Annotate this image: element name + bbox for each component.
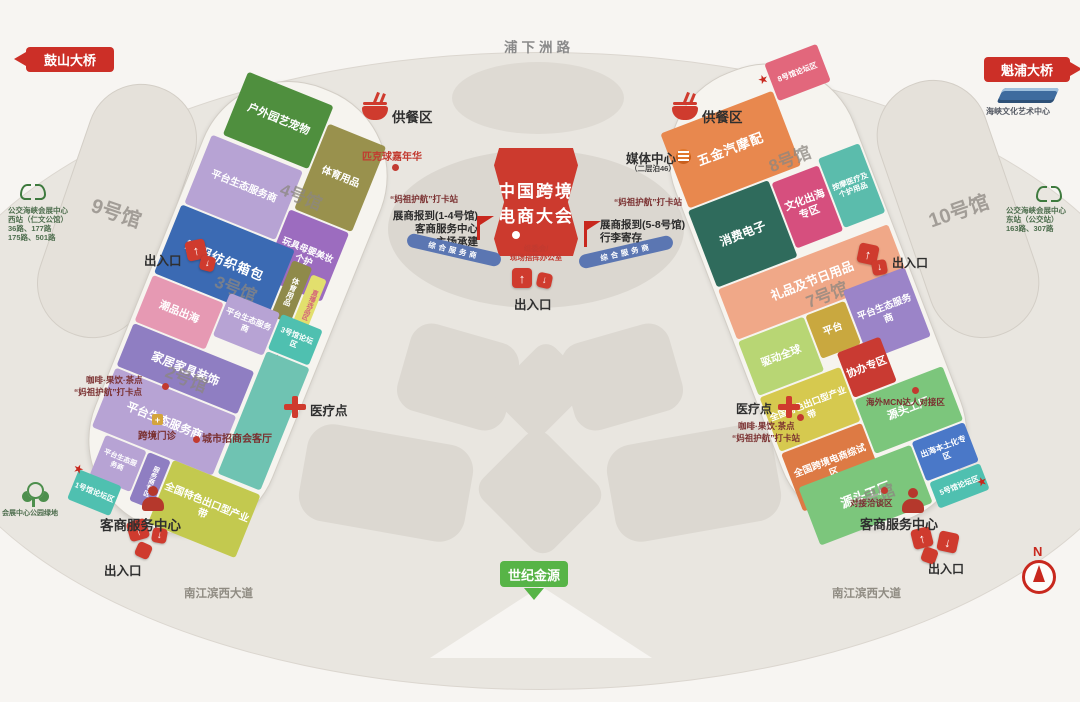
banner-line2: 电商大会: [498, 202, 574, 227]
mazu-station-west-label: “妈祖护航”打卡站: [390, 193, 458, 205]
dining-area-west-label: 供餐区: [392, 106, 433, 126]
century-sign: 世纪金源: [500, 561, 568, 587]
bus-stop-east-icon: [1036, 186, 1062, 204]
negotiation-label: 对接洽谈区: [850, 497, 893, 509]
compass-n-label: N: [1033, 544, 1042, 559]
bus-stop-west-label: 公交海峡会展中心 西站（仁文公馆） 36路、177路 175路、501路: [8, 206, 68, 242]
bus-east-line2: 东站（公交站）: [1006, 215, 1066, 224]
cafe-west-dot: [162, 383, 169, 390]
bus-west-line1: 公交海峡会展中心: [8, 206, 68, 215]
medical-cross-icon-west: [284, 396, 306, 418]
service-center-west-icon: [140, 486, 166, 512]
park-label: 会展中心公园绿地: [2, 508, 58, 518]
north-plaza-shape: [452, 62, 624, 134]
dining-area-east-label: 供餐区: [702, 106, 743, 126]
service-center-east-label: 客商服务中心: [860, 514, 938, 533]
park-tree-icon: [18, 480, 48, 510]
compass-icon: [1022, 560, 1056, 594]
entrance-east-south-icon2: [936, 530, 960, 554]
mazu-point-west-label: “妈祖护航”打卡点: [74, 386, 142, 398]
flag-icon-west: [477, 216, 480, 240]
entrance-center-icon-in: [512, 268, 532, 288]
kuipu-bridge-sign: 魁浦大桥: [984, 57, 1070, 82]
road-top-label: 浦下洲路: [504, 36, 574, 56]
clinic-label: 跨境门诊: [138, 428, 176, 442]
bus-east-line3: 163路、307路: [1006, 224, 1066, 233]
arrow-left-icon: [14, 52, 26, 66]
bus-stop-east-label: 公交海峡会展中心 东站（公交站） 163路、307路: [1006, 206, 1066, 233]
conference-banner: 中国跨境 电商大会: [494, 148, 578, 256]
pickleball-label: 匹克球嘉年华: [362, 148, 422, 163]
bus-west-line4: 175路、501路: [8, 233, 68, 242]
medical-point-east-label: 医疗点: [736, 400, 772, 417]
registration-east-block: 展商报到(5-8号馆) 行李寄存: [600, 219, 685, 245]
mazu-station-east2-label: “妈祖护航”打卡站: [732, 432, 800, 444]
cafe-east-label: 咖啡·果饮·茶点: [738, 420, 795, 432]
registration-west-line1: 展商报到(1-4号馆): [330, 210, 478, 223]
registration-west-line2: 客商服务中心: [330, 223, 478, 236]
bus-east-line1: 公交海峡会展中心: [1006, 206, 1066, 215]
banner-line1: 中国跨境: [498, 177, 574, 202]
zone-forum-hall8: 8号馆论坛区: [764, 44, 831, 101]
entrance-east-north-label: 出入口: [892, 254, 928, 271]
entrance-center-label: 出入口: [514, 294, 552, 313]
cafe-west-label: 咖啡·果饮·茶点: [86, 374, 143, 386]
hall-10-label: 10号馆: [924, 185, 992, 233]
committee-line1: 组委会/: [484, 244, 588, 253]
pickleball-marker-dot: [392, 164, 399, 171]
bus-stop-west-icon: [20, 184, 46, 202]
service-center-west-label: 客商服务中心: [100, 514, 181, 534]
century-arrow-icon: [524, 588, 544, 600]
gushan-bridge-sign: 鼓山大桥: [26, 47, 114, 72]
entrance-east-south-label: 出入口: [928, 560, 964, 577]
committee-marker-dot: [512, 231, 520, 239]
mcn-dot: [912, 387, 919, 394]
cafe-east-dot: [797, 414, 804, 421]
road-southeast-label: 南江滨西大道: [832, 585, 901, 601]
hall-9-label: 9号馆: [88, 189, 146, 233]
arrow-right-icon: [1070, 62, 1080, 76]
registration-east-line2: 行李寄存: [600, 232, 685, 245]
city-lounge-label: 城市招商会客厅: [202, 430, 272, 445]
entrance-west-south-label: 出入口: [104, 560, 142, 579]
negotiation-dot: [881, 487, 888, 494]
city-lounge-dot: [193, 436, 200, 443]
media-globe-icon: [676, 149, 691, 164]
entrance-east-north-icon2: [871, 259, 888, 276]
road-southwest-label: 南江滨西大道: [184, 585, 253, 601]
clinic-icon: [152, 414, 163, 425]
mazu-station-east-label: “妈祖护航”打卡站: [614, 196, 682, 208]
entrance-west-north-label: 出入口: [144, 250, 182, 269]
service-center-east-icon: [900, 488, 926, 514]
medical-point-west-label: 医疗点: [310, 400, 348, 419]
media-center-note: （二层泊46）: [630, 163, 676, 174]
art-center-building-icon: [997, 88, 1060, 103]
bus-west-line2: 西站（仁文公馆）: [8, 215, 68, 224]
bus-west-line3: 36路、177路: [8, 224, 68, 233]
venue-map: { "roads": {"top": "浦下洲路", "southwest": …: [0, 0, 1080, 702]
registration-east-line1: 展商报到(5-8号馆): [600, 219, 685, 232]
mcn-label: 海外MCN达人对接区: [866, 396, 945, 408]
art-center-label: 海峡文化艺术中心: [986, 106, 1050, 117]
flag-icon-east: [584, 221, 587, 247]
